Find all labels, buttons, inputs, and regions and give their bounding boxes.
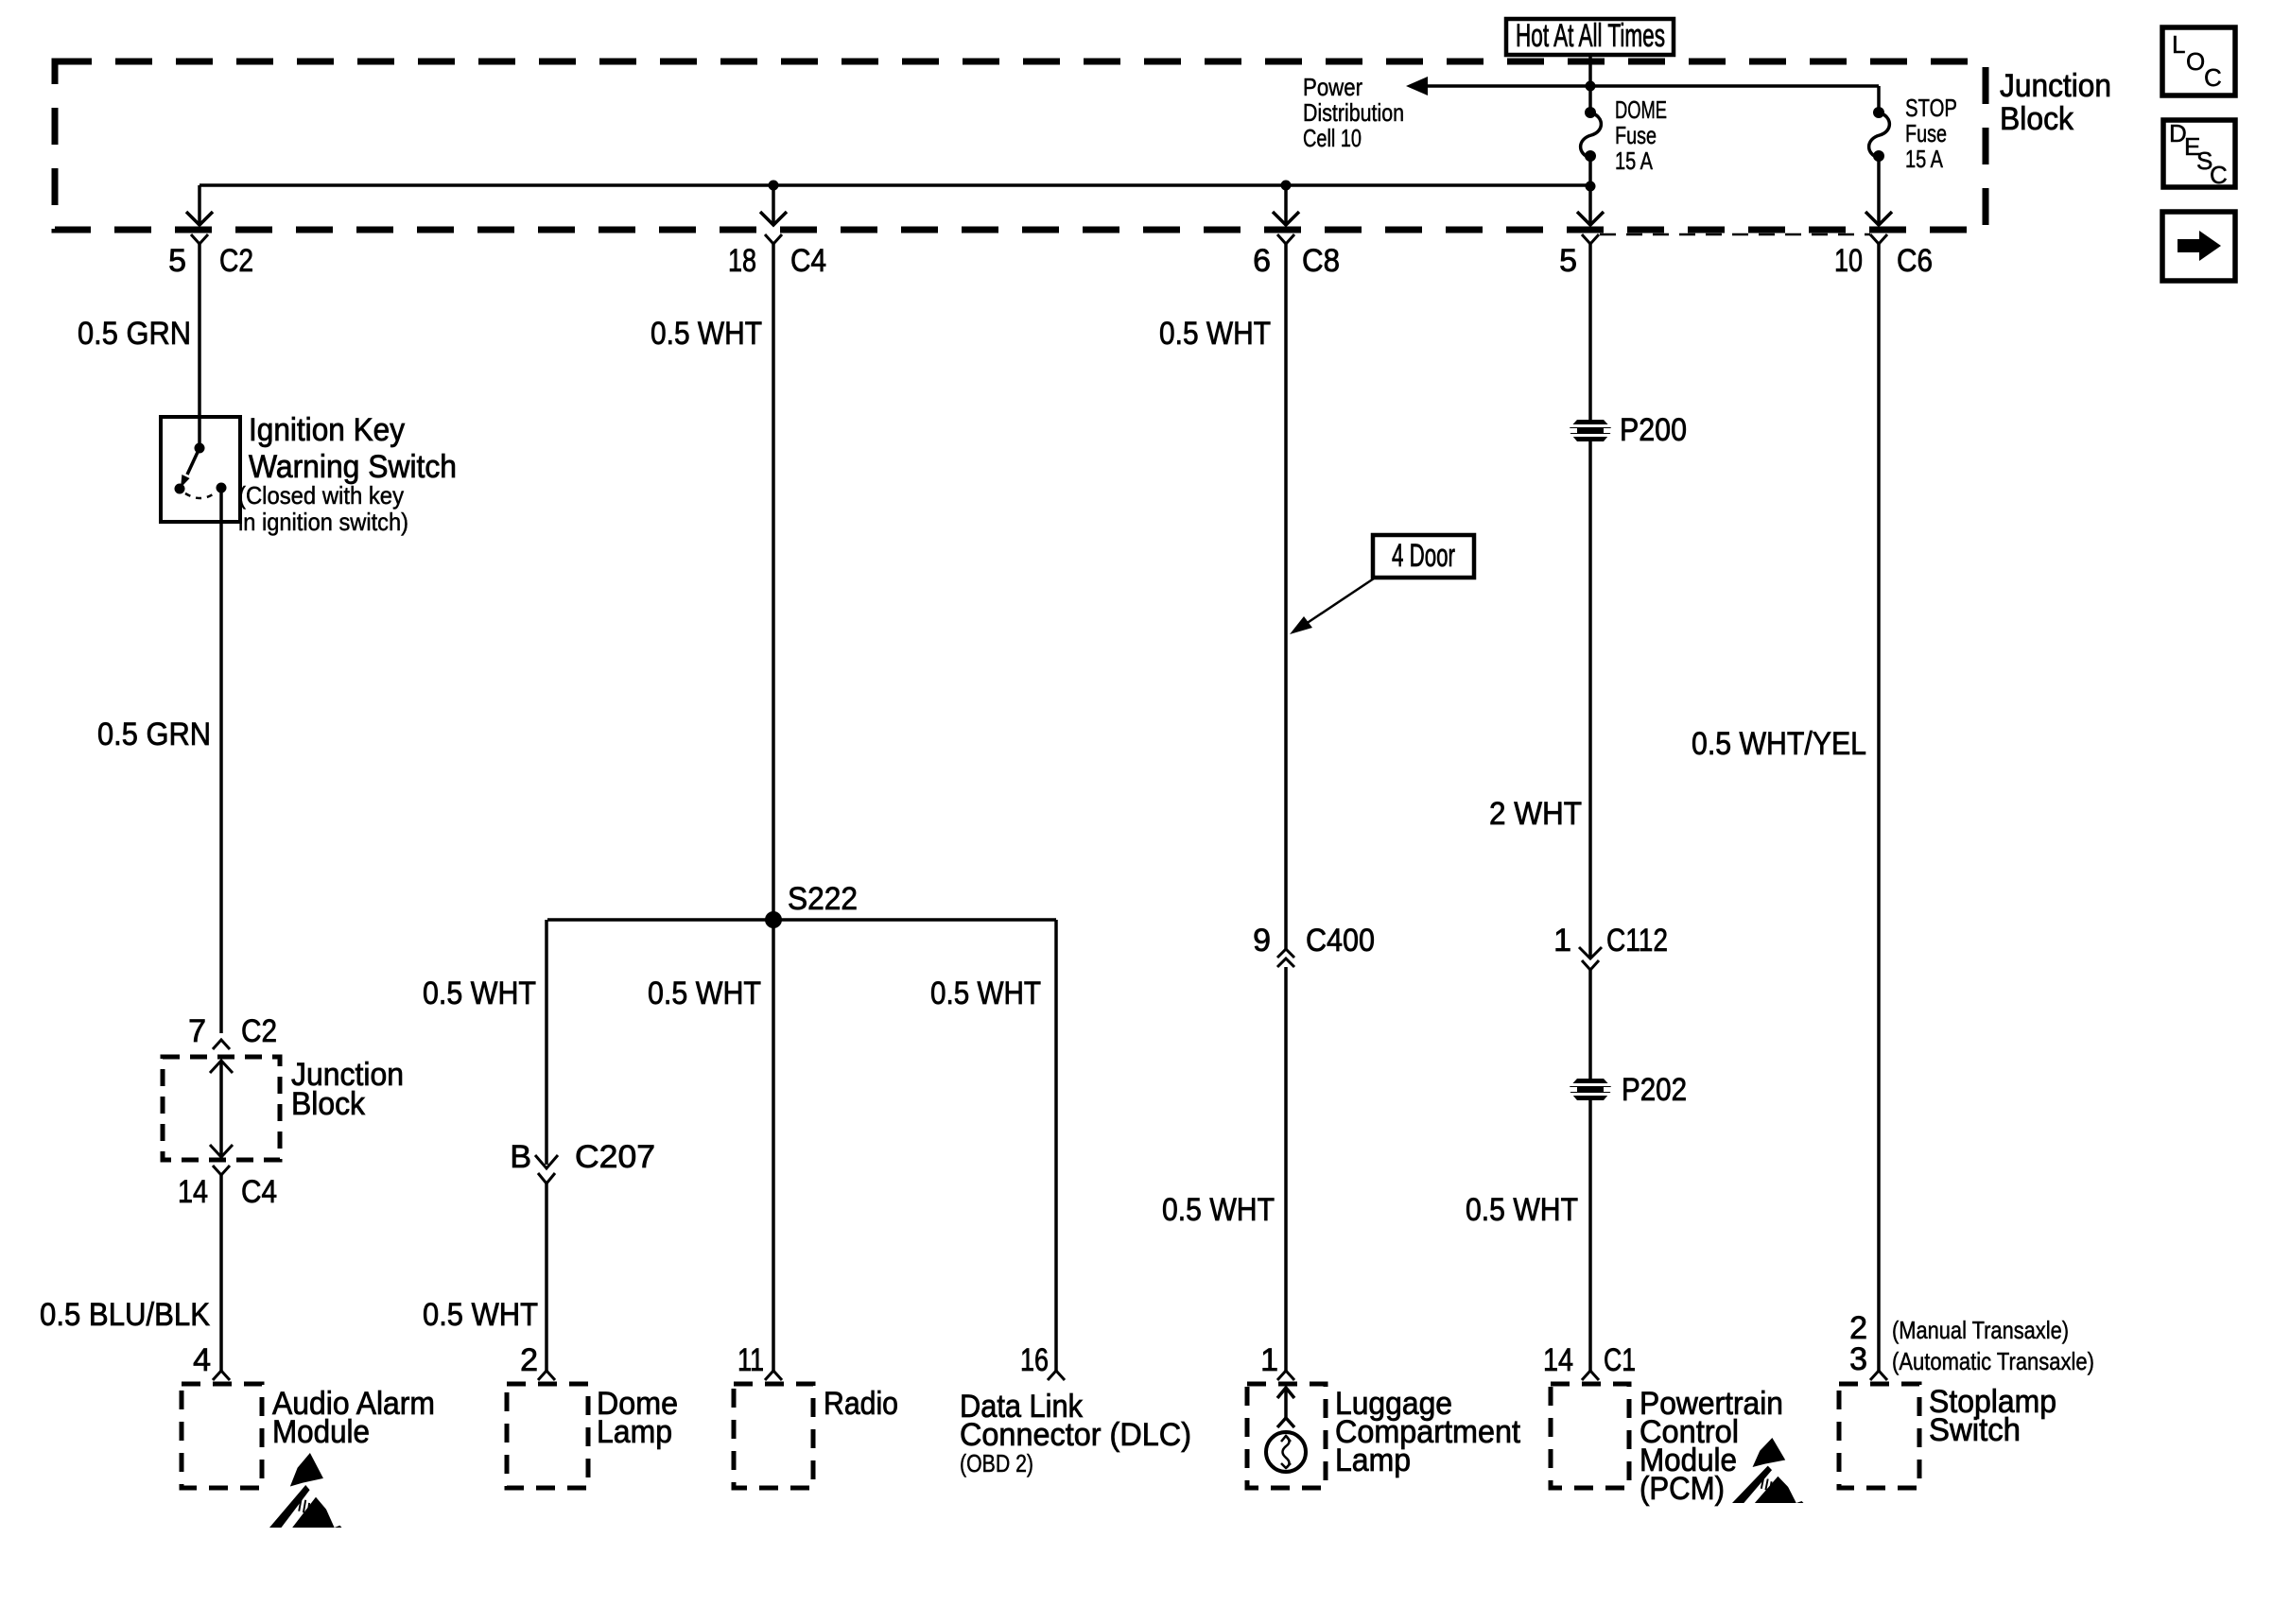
svg-text:9: 9 [1253,923,1271,959]
svg-text:C1: C1 [1604,1342,1636,1378]
svg-text:Junction: Junction [2000,68,2111,104]
svg-text:0.5 WHT: 0.5 WHT [423,1297,538,1333]
svg-text:Warning Switch: Warning Switch [249,449,457,485]
svg-text:5: 5 [168,243,186,279]
svg-text:Fuse: Fuse [1905,119,1947,147]
svg-text:C112: C112 [1606,923,1668,959]
svg-text:16: 16 [1020,1342,1049,1378]
svg-text:0.5 WHT: 0.5 WHT [651,316,762,352]
svg-text:18: 18 [728,243,756,279]
svg-text:Power: Power [1303,73,1362,101]
svg-text:C4: C4 [241,1174,277,1210]
svg-text:0.5 WHT: 0.5 WHT [1162,1192,1275,1228]
svg-text:14: 14 [1543,1342,1573,1378]
svg-text:L: L [2172,30,2185,59]
svg-text:P202: P202 [1622,1072,1687,1108]
svg-text:14: 14 [178,1174,208,1210]
svg-text:0.5 WHT: 0.5 WHT [1159,316,1271,352]
svg-text:Hot At All Times: Hot At All Times [1516,18,1665,54]
svg-text:(OBD 2): (OBD 2) [960,1449,1033,1477]
svg-text:Block: Block [2000,101,2074,137]
svg-text:2: 2 [520,1342,538,1378]
svg-text:(Closed with key: (Closed with key [238,481,404,510]
svg-text:S222: S222 [788,881,858,917]
svg-text:in ignition switch): in ignition switch) [238,508,408,536]
svg-text:0.5 GRN: 0.5 GRN [97,717,211,752]
svg-text:11: 11 [737,1342,764,1378]
svg-text:Radio: Radio [824,1386,898,1422]
svg-text:(PCM): (PCM) [1640,1471,1725,1507]
svg-text:Module: Module [272,1414,370,1450]
svg-text:C400: C400 [1306,923,1375,959]
svg-text:C: C [2210,161,2228,189]
svg-text:0.5 WHT: 0.5 WHT [423,976,536,1011]
svg-text:(Automatic Transaxle): (Automatic Transaxle) [1892,1347,2094,1375]
svg-text:C: C [2204,63,2222,92]
svg-text:Lamp: Lamp [1335,1443,1411,1478]
svg-text:1: 1 [1260,1342,1278,1378]
svg-text:2 WHT: 2 WHT [1489,796,1582,832]
svg-text:0.5 WHT: 0.5 WHT [648,976,761,1011]
svg-text:B: B [510,1139,531,1175]
svg-text:6: 6 [1253,243,1271,279]
svg-text:Cell 10: Cell 10 [1303,124,1362,152]
svg-text:C207: C207 [575,1139,655,1175]
svg-text:0.5 GRN: 0.5 GRN [78,316,191,352]
svg-text:Switch: Switch [1929,1412,2021,1448]
svg-text:0.5 BLU/BLK: 0.5 BLU/BLK [40,1297,210,1333]
svg-text:15 A: 15 A [1615,147,1653,175]
svg-text:3: 3 [1849,1341,1867,1377]
svg-text:0.5 WHT: 0.5 WHT [1466,1192,1578,1228]
svg-text:C2: C2 [219,243,253,279]
svg-text:4 Door: 4 Door [1392,538,1455,574]
svg-text:C2: C2 [241,1013,277,1049]
svg-text:15 A: 15 A [1905,145,1943,173]
svg-text:Lamp: Lamp [597,1414,672,1450]
svg-text:O: O [2186,47,2205,76]
svg-text:5: 5 [1559,243,1577,279]
svg-text:C8: C8 [1302,243,1340,279]
svg-text:Block: Block [291,1086,366,1122]
svg-text:7: 7 [188,1013,206,1049]
svg-text:10: 10 [1834,243,1863,279]
svg-text:Connector (DLC): Connector (DLC) [960,1417,1191,1453]
svg-text:Fuse: Fuse [1615,121,1657,149]
svg-text:(Manual Transaxle): (Manual Transaxle) [1892,1316,2069,1344]
svg-text:Distribution: Distribution [1303,98,1404,127]
svg-text:C6: C6 [1897,243,1933,279]
svg-text:0.5 WHT/YEL: 0.5 WHT/YEL [1692,726,1866,762]
svg-text:0.5 WHT: 0.5 WHT [930,976,1041,1011]
svg-text:P200: P200 [1620,412,1687,448]
svg-text:STOP: STOP [1905,94,1957,122]
svg-text:DOME: DOME [1615,95,1667,124]
svg-text:1: 1 [1553,923,1571,959]
svg-text:Ignition Key: Ignition Key [249,412,405,448]
svg-text:4: 4 [193,1342,211,1378]
svg-text:C4: C4 [790,243,826,279]
